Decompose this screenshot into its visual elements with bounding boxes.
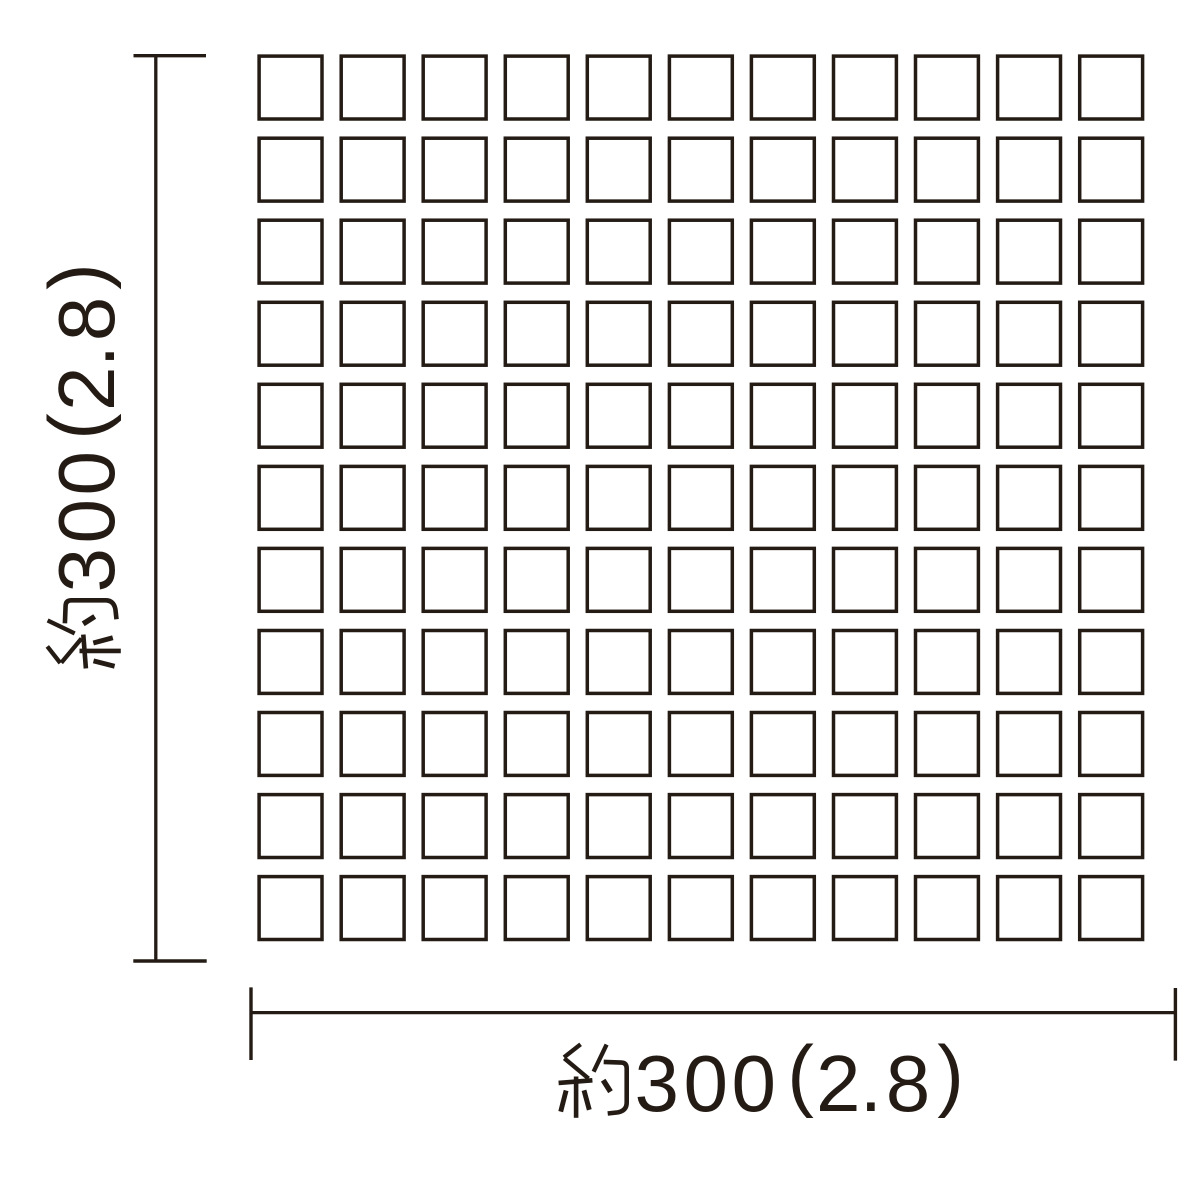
svg-text:8: 8 xyxy=(42,297,131,342)
svg-text:0: 0 xyxy=(42,451,131,496)
svg-text:0: 0 xyxy=(42,499,131,544)
svg-text:): ) xyxy=(937,1030,964,1119)
svg-text:2: 2 xyxy=(42,367,131,412)
svg-text:8: 8 xyxy=(886,1039,931,1128)
svg-text:2: 2 xyxy=(816,1039,861,1128)
svg-text:.: . xyxy=(860,1039,882,1128)
svg-text:0: 0 xyxy=(684,1039,729,1128)
svg-text:0: 0 xyxy=(732,1039,777,1128)
svg-text:(: ( xyxy=(787,1030,814,1119)
svg-text:(: ( xyxy=(33,413,122,440)
svg-text:3: 3 xyxy=(635,1039,680,1128)
svg-text:3: 3 xyxy=(42,548,131,593)
svg-text:.: . xyxy=(42,345,131,367)
svg-text:): ) xyxy=(33,263,122,290)
